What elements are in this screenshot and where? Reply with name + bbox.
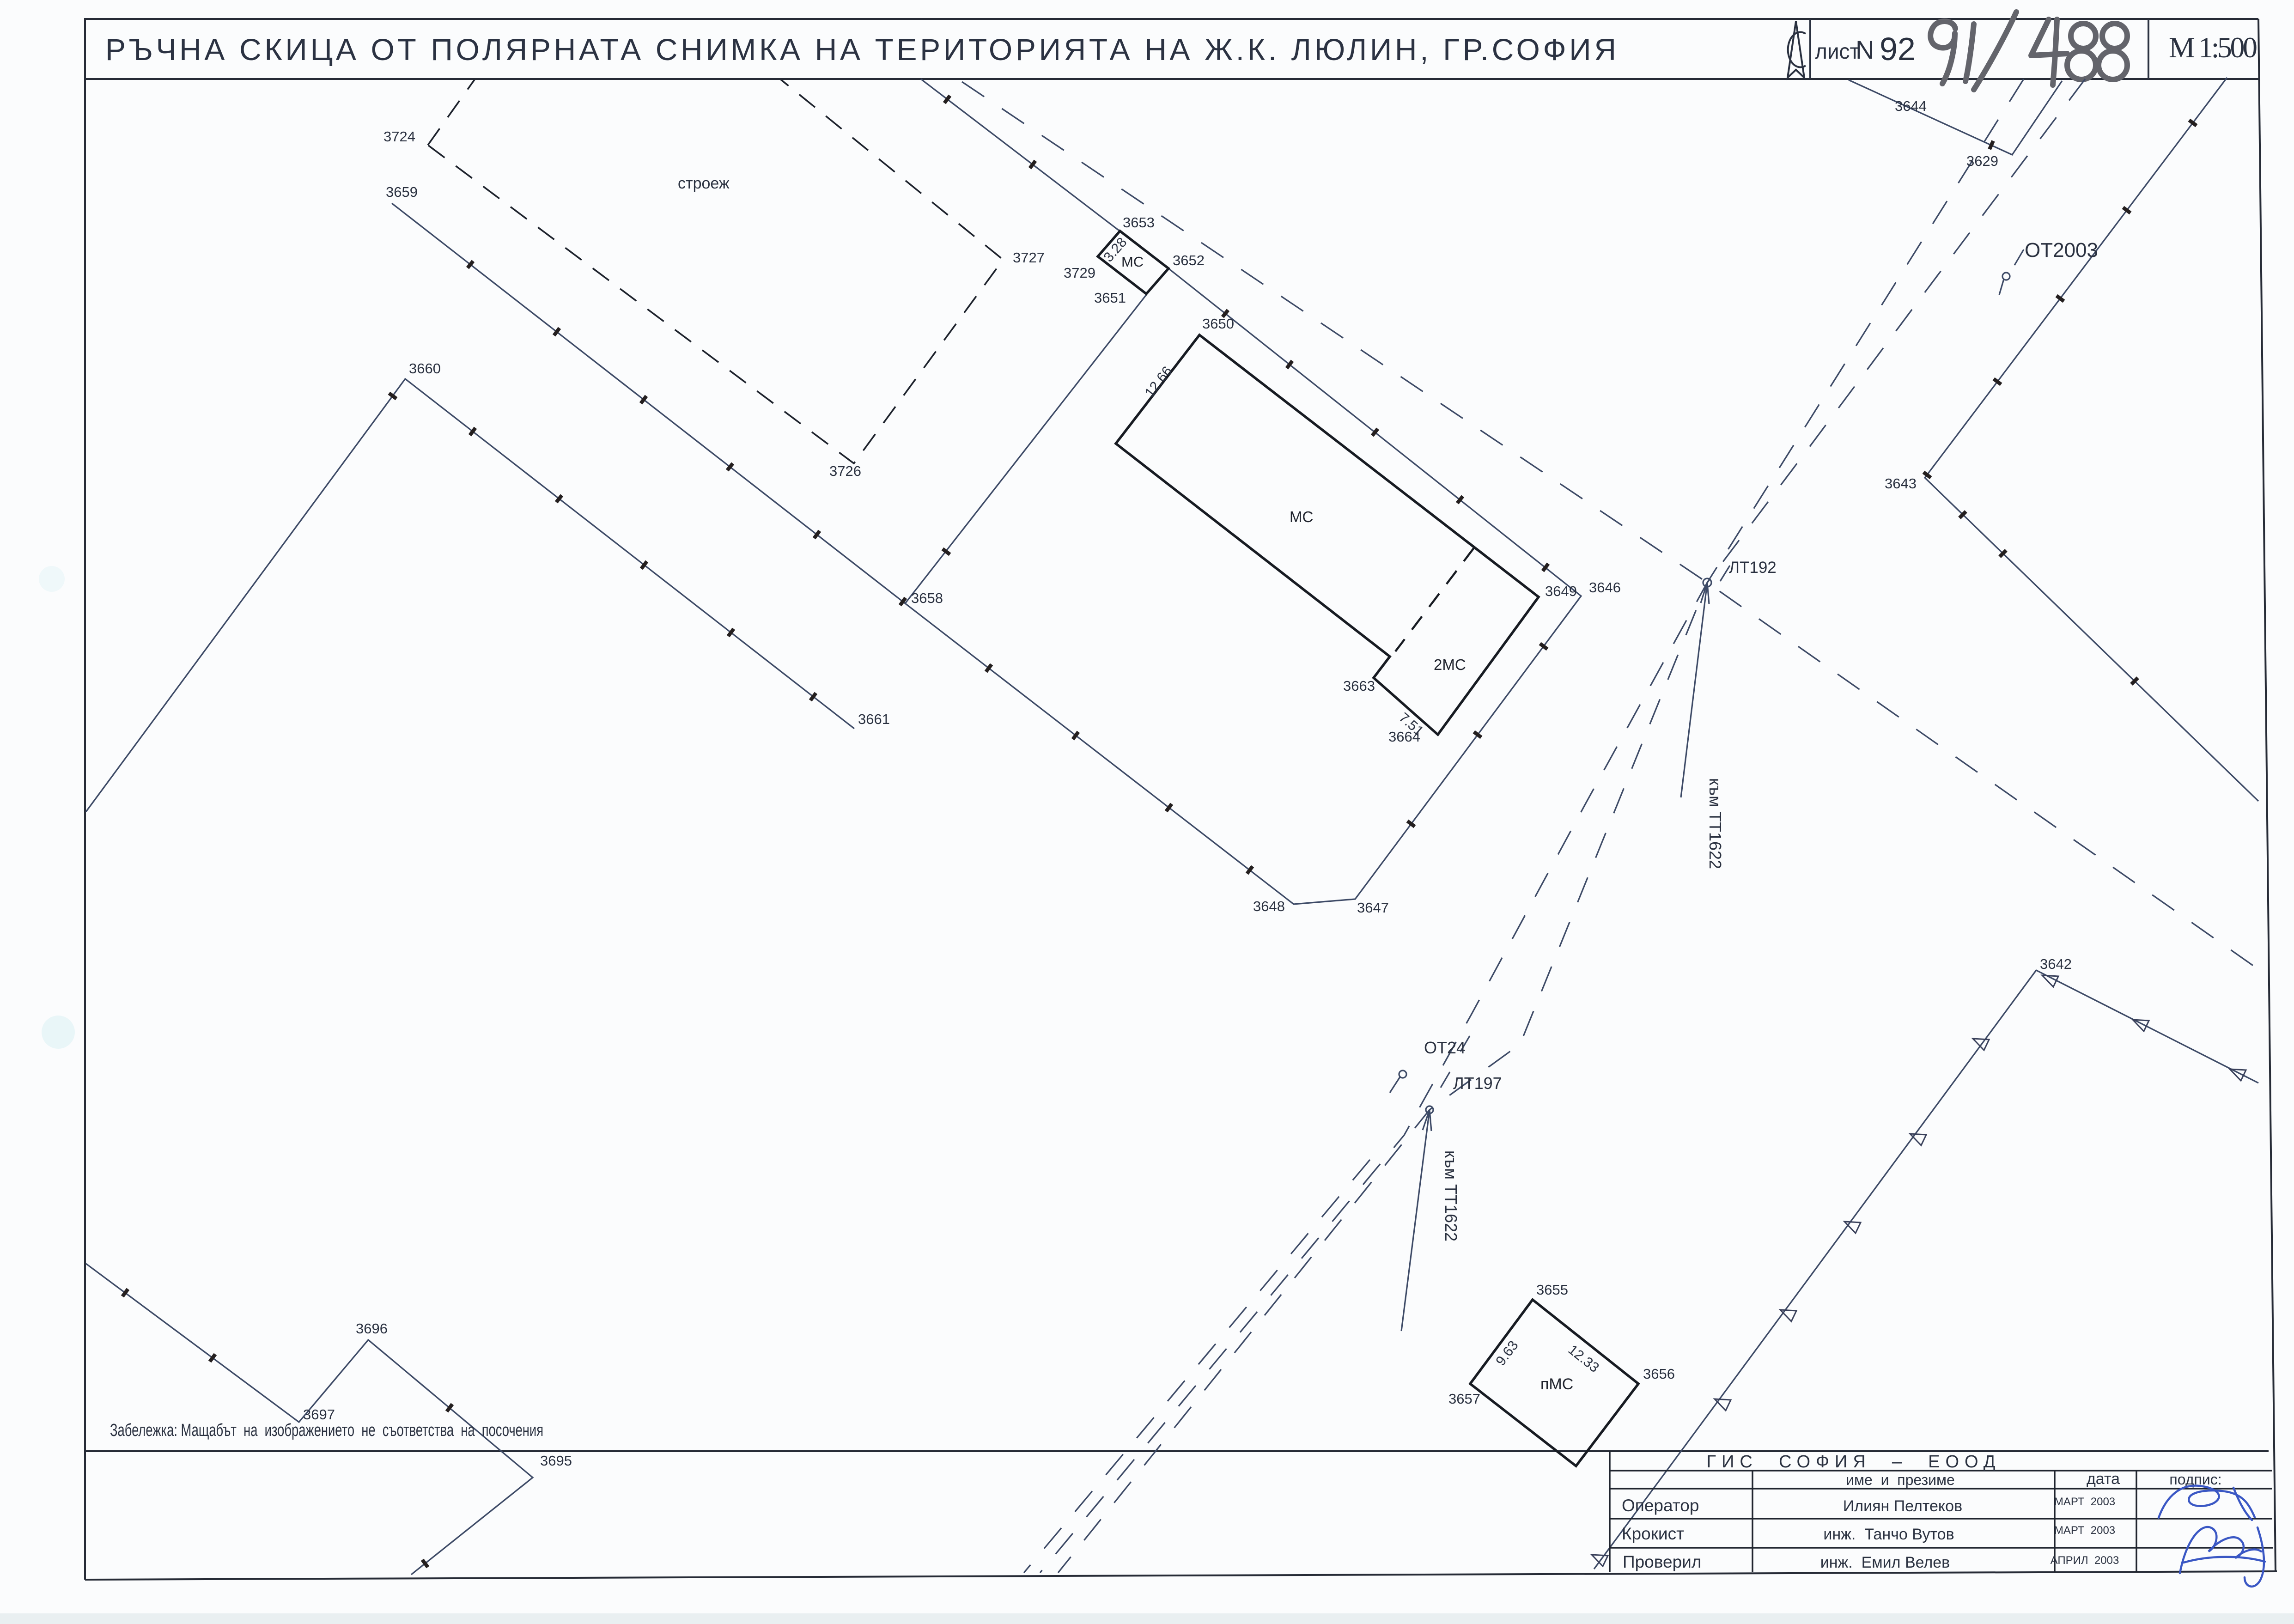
svg-text:N: N bbox=[1856, 35, 1874, 64]
svg-text:3724: 3724 bbox=[383, 128, 415, 145]
svg-text:ЛТ192: ЛТ192 bbox=[1729, 559, 1777, 577]
svg-text:92: 92 bbox=[1880, 31, 1916, 67]
svg-text:2МС: 2МС bbox=[1434, 656, 1466, 673]
svg-text:към ТТ1622: към ТТ1622 bbox=[1706, 778, 1725, 869]
svg-text:3729: 3729 bbox=[1064, 265, 1095, 281]
svg-text:3726: 3726 bbox=[829, 463, 861, 479]
svg-text:инж. Танчо Вутов: инж. Танчо Вутов bbox=[1823, 1526, 1954, 1543]
svg-text:име и презиме: име и презиме bbox=[1846, 1472, 1955, 1488]
svg-text:3657: 3657 bbox=[1448, 1391, 1480, 1407]
svg-text:строеж: строеж bbox=[678, 175, 730, 192]
svg-text:Оператор: Оператор bbox=[1622, 1496, 1699, 1515]
svg-text:дата: дата bbox=[2087, 1470, 2120, 1488]
svg-text:М 1:500: М 1:500 bbox=[2169, 31, 2257, 64]
svg-text:лист: лист bbox=[1815, 39, 1860, 63]
svg-text:МАРТ 2003: МАРТ 2003 bbox=[2054, 1524, 2115, 1537]
svg-text:3695: 3695 bbox=[540, 1453, 572, 1469]
svg-text:3663: 3663 bbox=[1343, 678, 1375, 694]
svg-text:3658: 3658 bbox=[911, 590, 943, 606]
svg-text:ЛТ197: ЛТ197 bbox=[1453, 1074, 1502, 1093]
svg-text:3653: 3653 bbox=[1123, 214, 1155, 231]
svg-text:ГИС СОФИЯ – ЕООД: ГИС СОФИЯ – ЕООД bbox=[1707, 1452, 2001, 1472]
svg-text:към ТТ1622: към ТТ1622 bbox=[1442, 1150, 1460, 1241]
svg-text:инж. Емил Велев: инж. Емил Велев bbox=[1820, 1554, 1950, 1571]
svg-text:АПРИЛ 2003: АПРИЛ 2003 bbox=[2051, 1554, 2119, 1567]
svg-text:3644: 3644 bbox=[1895, 98, 1927, 114]
svg-text:3643: 3643 bbox=[1885, 475, 1917, 492]
svg-text:3659: 3659 bbox=[386, 184, 418, 200]
svg-text:3650: 3650 bbox=[1202, 316, 1234, 332]
svg-text:ОТ2003: ОТ2003 bbox=[2025, 239, 2098, 262]
svg-text:3646: 3646 bbox=[1589, 579, 1621, 596]
svg-text:3696: 3696 bbox=[356, 1320, 388, 1337]
svg-text:3652: 3652 bbox=[1173, 252, 1205, 268]
svg-text:Илиян Пелтеков: Илиян Пелтеков bbox=[1843, 1497, 1962, 1515]
svg-text:3656: 3656 bbox=[1643, 1366, 1675, 1382]
svg-text:ОТ24: ОТ24 bbox=[1424, 1038, 1466, 1057]
svg-text:3651: 3651 bbox=[1094, 290, 1126, 306]
svg-text:Забележка: Мащабът на изобра: Забележка: Мащабът на изображението не с… bbox=[110, 1421, 543, 1440]
svg-text:МС: МС bbox=[1290, 508, 1313, 525]
svg-text:3647: 3647 bbox=[1357, 900, 1389, 916]
svg-text:3697: 3697 bbox=[303, 1406, 335, 1423]
svg-text:3649: 3649 bbox=[1545, 583, 1577, 599]
svg-text:3648: 3648 bbox=[1253, 898, 1285, 914]
svg-text:пМС: пМС bbox=[1540, 1375, 1573, 1393]
svg-text:3629: 3629 bbox=[1966, 153, 1998, 169]
svg-text:МАРТ 2003: МАРТ 2003 bbox=[2054, 1496, 2115, 1508]
svg-text:Проверил: Проверил bbox=[1623, 1552, 1701, 1571]
svg-text:МС: МС bbox=[1121, 254, 1144, 270]
svg-text:3660: 3660 bbox=[409, 360, 441, 377]
svg-text:3655: 3655 bbox=[1536, 1282, 1568, 1298]
svg-text:Крокист: Крокист bbox=[1622, 1524, 1684, 1543]
svg-text:3642: 3642 bbox=[2040, 956, 2072, 972]
svg-text:3727: 3727 bbox=[1013, 249, 1045, 266]
svg-text:3661: 3661 bbox=[858, 711, 890, 727]
